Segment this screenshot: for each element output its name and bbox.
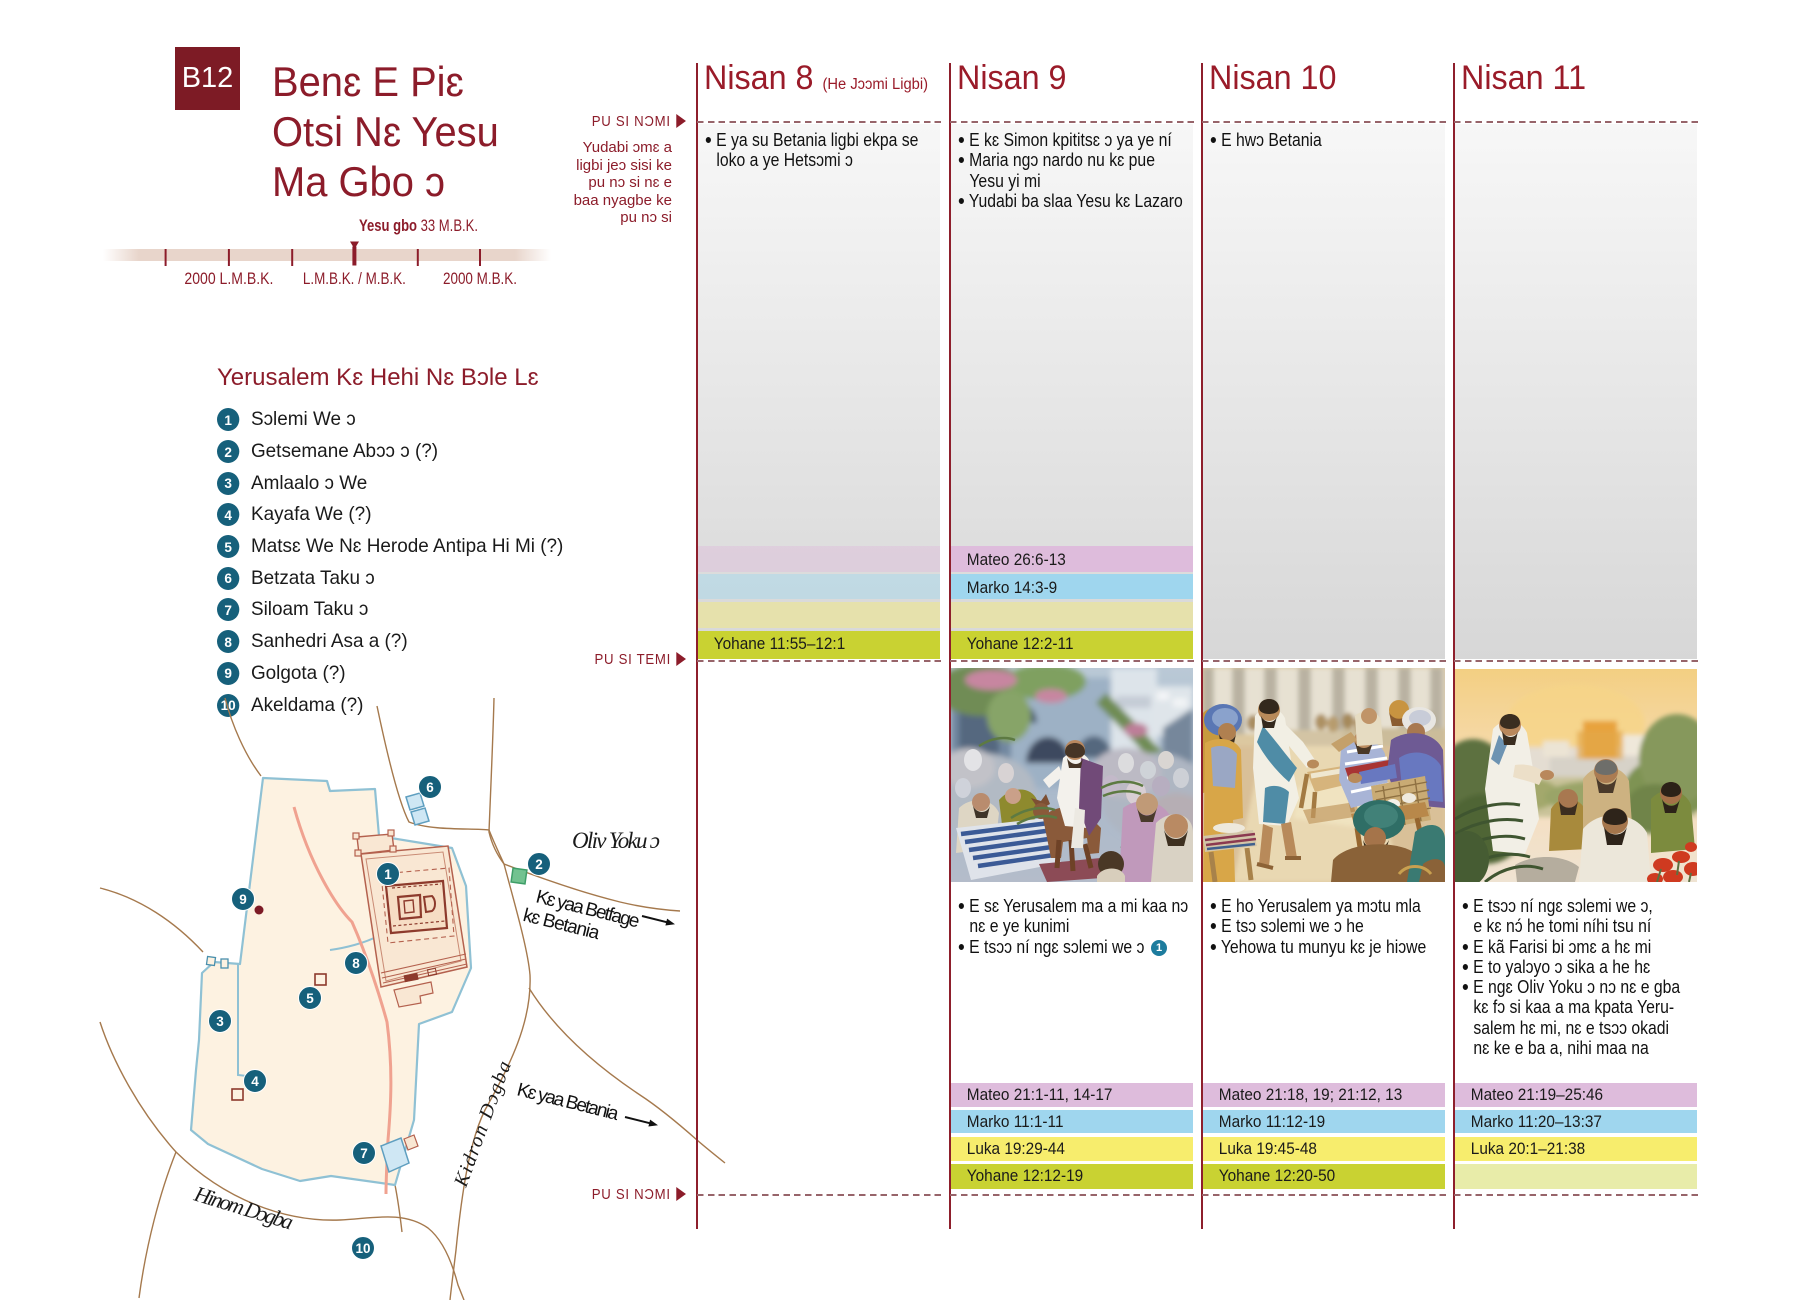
svg-text:Hinom Dɔgba: Hinom Dɔgba [191,1181,297,1235]
svg-text:2: 2 [535,857,543,872]
svg-text:L.M.B.K. / M.B.K.: L.M.B.K. / M.B.K. [303,269,406,288]
svg-text:2000 L.M.B.K.: 2000 L.M.B.K. [184,269,273,288]
svg-text:4: 4 [251,1074,259,1089]
svg-text:3: 3 [216,1014,224,1029]
svg-text:Kɛ yaa Betania: Kɛ yaa Betania [515,1079,621,1125]
svg-text:5: 5 [306,991,314,1006]
svg-text:1: 1 [384,867,392,882]
svg-text:8: 8 [352,956,360,971]
svg-text:10: 10 [355,1241,370,1256]
svg-text:9: 9 [239,892,247,907]
svg-text:Kidron Dɔgba: Kidron Dɔgba [450,1058,516,1191]
svg-text:7: 7 [360,1146,368,1161]
svg-text:6: 6 [426,780,434,795]
svg-text:Oliv Yoku ɔ: Oliv Yoku ɔ [572,828,660,853]
svg-text:2000 M.B.K.: 2000 M.B.K. [443,269,517,288]
svg-text:Yesu gbo 33 M.B.K.: Yesu gbo 33 M.B.K. [359,216,478,235]
